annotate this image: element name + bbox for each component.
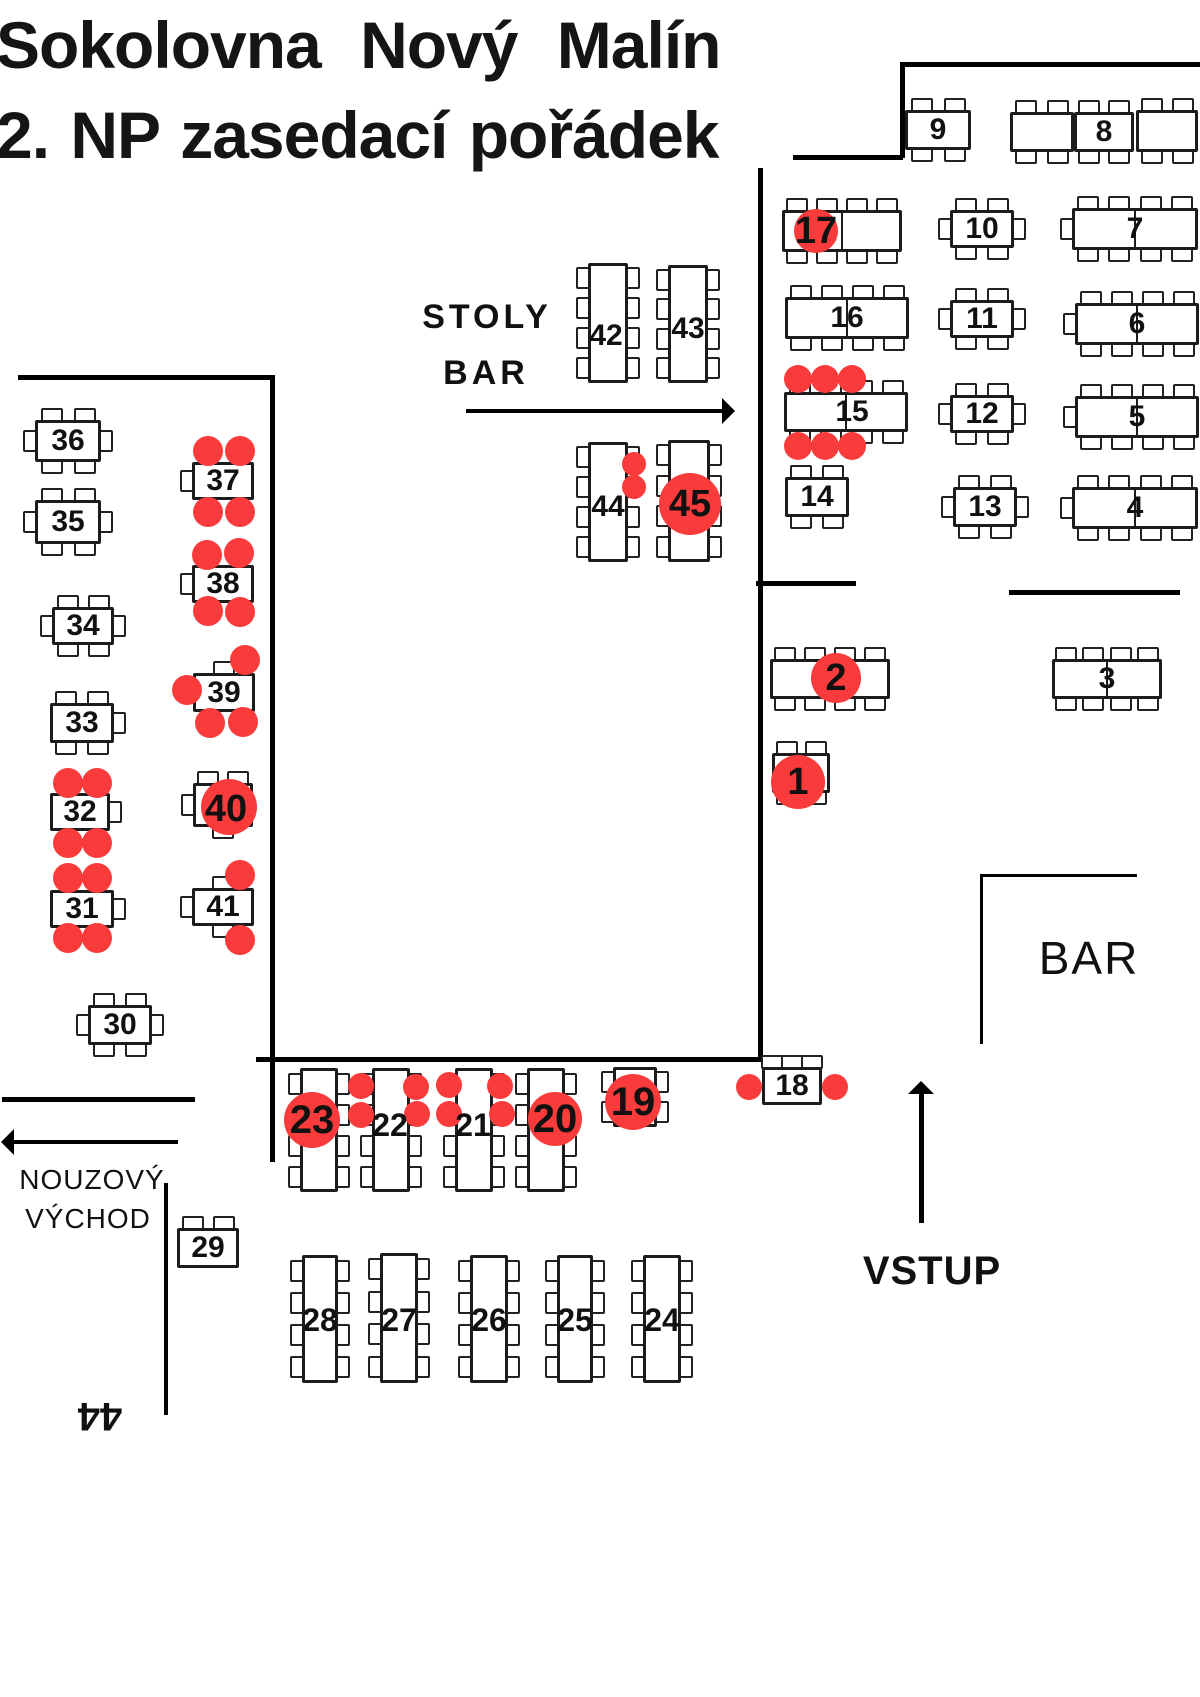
chair bbox=[99, 430, 113, 452]
person-dot bbox=[622, 452, 646, 476]
wall bbox=[164, 1183, 168, 1415]
chair bbox=[1012, 308, 1026, 330]
chair bbox=[786, 250, 808, 264]
chair bbox=[679, 1292, 693, 1314]
person-dot bbox=[230, 645, 260, 675]
table-number: 19 bbox=[611, 1082, 656, 1122]
table-number: 27 bbox=[381, 1304, 417, 1336]
chair bbox=[336, 1356, 350, 1378]
chair bbox=[1142, 343, 1164, 357]
chair bbox=[74, 542, 96, 556]
table-number: 10 bbox=[965, 214, 998, 244]
table-number: 13 bbox=[968, 492, 1001, 522]
table-number: 29 bbox=[191, 1233, 224, 1263]
chair bbox=[1108, 150, 1130, 164]
chair bbox=[336, 1135, 350, 1157]
wall bbox=[793, 155, 903, 160]
person-dot bbox=[225, 497, 255, 527]
wall bbox=[980, 874, 1137, 877]
table-number: 14 bbox=[800, 482, 833, 512]
wall bbox=[2, 1097, 195, 1102]
table-join-divider bbox=[841, 213, 843, 249]
table-number: 44 bbox=[591, 492, 624, 522]
chair bbox=[416, 1356, 430, 1378]
person-dot bbox=[53, 768, 83, 798]
chair bbox=[883, 337, 905, 351]
table-number: 20 bbox=[533, 1099, 578, 1139]
person-dot bbox=[838, 365, 866, 393]
chair bbox=[1012, 403, 1026, 425]
chair bbox=[1137, 697, 1159, 711]
table-number: 43 bbox=[671, 314, 704, 344]
table-number: 3 bbox=[1099, 664, 1116, 694]
emergency-exit-label-line2: VÝCHOD bbox=[25, 1205, 151, 1233]
table-number: 33 bbox=[65, 708, 98, 738]
person-dot bbox=[172, 675, 202, 705]
person-dot bbox=[82, 768, 112, 798]
person-dot bbox=[784, 432, 812, 460]
person-dot bbox=[225, 925, 255, 955]
table-number: 45 bbox=[669, 485, 711, 523]
wall bbox=[270, 375, 275, 1162]
chair bbox=[774, 697, 796, 711]
chair bbox=[408, 1135, 422, 1157]
chair bbox=[1140, 248, 1162, 262]
table bbox=[1136, 110, 1198, 152]
person-dot bbox=[622, 475, 646, 499]
chair bbox=[506, 1260, 520, 1282]
chair bbox=[1108, 248, 1130, 262]
emergency-exit-label-line1: NOUZOVÝ bbox=[19, 1166, 164, 1194]
chair bbox=[416, 1323, 430, 1345]
person-dot bbox=[838, 432, 866, 460]
chair bbox=[506, 1356, 520, 1378]
table-number: 7 bbox=[1127, 214, 1144, 244]
stoly-label: STOLY bbox=[422, 300, 552, 334]
table-number: 40 bbox=[205, 790, 247, 828]
wall bbox=[1009, 590, 1180, 595]
chair bbox=[491, 1135, 505, 1157]
chair bbox=[591, 1260, 605, 1282]
chair bbox=[150, 1014, 164, 1036]
table-number: 12 bbox=[965, 399, 998, 429]
chair bbox=[1140, 527, 1162, 541]
chair bbox=[1077, 248, 1099, 262]
chair bbox=[1173, 343, 1195, 357]
chair bbox=[336, 1292, 350, 1314]
person-dot bbox=[195, 708, 225, 738]
emergency-exit-arrow bbox=[12, 1140, 178, 1144]
chair bbox=[846, 250, 868, 264]
chair bbox=[87, 741, 109, 755]
chair bbox=[822, 515, 844, 529]
chair bbox=[1080, 343, 1102, 357]
chair bbox=[1015, 496, 1029, 518]
chair bbox=[944, 148, 966, 162]
chair bbox=[708, 536, 722, 558]
chair bbox=[706, 328, 720, 350]
table-number: 18 bbox=[775, 1071, 808, 1101]
table-number: 37 bbox=[206, 466, 239, 496]
chair bbox=[955, 431, 977, 445]
table-number: 25 bbox=[557, 1304, 593, 1336]
wall bbox=[18, 375, 270, 380]
table-number: 38 bbox=[206, 569, 239, 599]
chair bbox=[112, 712, 126, 734]
chair bbox=[790, 515, 812, 529]
stoly-bar-label: BAR bbox=[443, 356, 529, 390]
chair bbox=[55, 741, 77, 755]
chair bbox=[626, 506, 640, 528]
chair bbox=[987, 246, 1009, 260]
chair bbox=[626, 357, 640, 379]
chair bbox=[93, 1043, 115, 1057]
chair bbox=[990, 525, 1012, 539]
person-dot bbox=[82, 923, 112, 953]
chair bbox=[852, 337, 874, 351]
table-number: 4 bbox=[1127, 493, 1144, 523]
chair bbox=[336, 1324, 350, 1346]
table-number: 34 bbox=[66, 611, 99, 641]
chair bbox=[790, 337, 812, 351]
chair bbox=[987, 431, 1009, 445]
table bbox=[1010, 112, 1074, 152]
chair bbox=[1172, 150, 1194, 164]
person-dot bbox=[811, 432, 839, 460]
table-number: 23 bbox=[290, 1100, 335, 1140]
chair bbox=[626, 297, 640, 319]
stoly-bar-arrow bbox=[466, 409, 724, 413]
chair bbox=[1078, 150, 1100, 164]
page-title-line2: 2. NP zasedací pořádek bbox=[0, 102, 718, 168]
chair bbox=[41, 460, 63, 474]
table-number: 16 bbox=[830, 303, 863, 333]
table-number: 15 bbox=[835, 397, 868, 427]
table-number: 31 bbox=[65, 894, 98, 924]
person-dot bbox=[192, 540, 222, 570]
emergency-exit-arrow-head bbox=[1, 1129, 14, 1155]
chair bbox=[408, 1166, 422, 1188]
floor-plan-canvas: Sokolovna Nový Malín 2. NP zasedací pořá… bbox=[0, 0, 1200, 1697]
table-number: 21 bbox=[455, 1109, 491, 1141]
person-dot bbox=[53, 923, 83, 953]
person-dot bbox=[403, 1074, 429, 1100]
chair bbox=[563, 1166, 577, 1188]
chair bbox=[416, 1291, 430, 1313]
chair bbox=[1171, 527, 1193, 541]
table-number: 1 bbox=[787, 763, 808, 801]
stoly-bar-arrow-head bbox=[722, 398, 735, 424]
table-number: 22 bbox=[372, 1109, 408, 1141]
rotated-44-label: 44 bbox=[78, 1396, 123, 1436]
person-dot bbox=[82, 863, 112, 893]
chair bbox=[1055, 697, 1077, 711]
chair bbox=[911, 148, 933, 162]
table-number: 24 bbox=[644, 1304, 680, 1336]
chair bbox=[416, 1258, 430, 1280]
chair bbox=[1077, 527, 1099, 541]
table-number: 39 bbox=[207, 678, 240, 708]
person-dot bbox=[811, 365, 839, 393]
chair bbox=[1173, 436, 1195, 450]
chair bbox=[708, 444, 722, 466]
table-number: 42 bbox=[589, 321, 622, 351]
chair bbox=[882, 430, 904, 444]
wall bbox=[980, 874, 983, 1044]
chair bbox=[1108, 527, 1130, 541]
table-number: 41 bbox=[206, 892, 239, 922]
table-number: 11 bbox=[966, 304, 998, 334]
chair bbox=[1171, 248, 1193, 262]
person-dot bbox=[784, 365, 812, 393]
person-dot bbox=[82, 828, 112, 858]
chair bbox=[336, 1166, 350, 1188]
person-dot bbox=[436, 1072, 462, 1098]
person-dot bbox=[193, 497, 223, 527]
chair bbox=[99, 511, 113, 533]
chair bbox=[506, 1324, 520, 1346]
wall bbox=[756, 581, 856, 586]
chair bbox=[706, 357, 720, 379]
chair bbox=[679, 1260, 693, 1282]
chair bbox=[591, 1356, 605, 1378]
chair bbox=[626, 536, 640, 558]
chair bbox=[1015, 150, 1037, 164]
table-number: 26 bbox=[471, 1304, 507, 1336]
chair bbox=[112, 898, 126, 920]
chair bbox=[876, 250, 898, 264]
chair bbox=[958, 525, 980, 539]
vstup-arrow-head bbox=[908, 1081, 934, 1094]
person-dot bbox=[487, 1073, 513, 1099]
chair bbox=[1111, 343, 1133, 357]
wall bbox=[900, 62, 1200, 67]
table-number: 6 bbox=[1129, 309, 1146, 339]
person-dot bbox=[348, 1073, 374, 1099]
table-number: 9 bbox=[930, 115, 947, 145]
bar-label: BAR bbox=[1039, 935, 1140, 981]
chair bbox=[955, 336, 977, 350]
person-dot bbox=[404, 1101, 430, 1127]
chair bbox=[626, 327, 640, 349]
table-number: 2 bbox=[825, 659, 846, 697]
chair bbox=[57, 643, 79, 657]
chair bbox=[563, 1073, 577, 1095]
chair bbox=[626, 267, 640, 289]
table-number: 28 bbox=[302, 1304, 338, 1336]
vstup-arrow bbox=[919, 1092, 924, 1223]
person-dot bbox=[225, 436, 255, 466]
vstup-label: VSTUP bbox=[863, 1251, 1001, 1291]
chair bbox=[491, 1166, 505, 1188]
chair bbox=[112, 615, 126, 637]
table-number: 36 bbox=[51, 426, 84, 456]
page-title-line1: Sokolovna Nový Malín bbox=[0, 12, 720, 78]
chair bbox=[864, 697, 886, 711]
person-dot bbox=[348, 1102, 374, 1128]
person-dot bbox=[53, 863, 83, 893]
chair bbox=[1111, 436, 1133, 450]
chair bbox=[1110, 697, 1132, 711]
table-number: 35 bbox=[51, 507, 84, 537]
chair bbox=[679, 1356, 693, 1378]
chair bbox=[591, 1292, 605, 1314]
chair bbox=[506, 1292, 520, 1314]
chair bbox=[706, 269, 720, 291]
chair bbox=[1082, 697, 1104, 711]
chair bbox=[591, 1324, 605, 1346]
chair bbox=[821, 337, 843, 351]
person-dot bbox=[736, 1074, 762, 1100]
person-dot bbox=[53, 828, 83, 858]
person-dot bbox=[489, 1101, 515, 1127]
chair bbox=[706, 298, 720, 320]
chair bbox=[679, 1324, 693, 1346]
chair bbox=[955, 246, 977, 260]
person-dot bbox=[228, 707, 258, 737]
table-number: 8 bbox=[1096, 117, 1113, 147]
chair bbox=[987, 336, 1009, 350]
wall bbox=[758, 168, 763, 1060]
person-dot bbox=[225, 860, 255, 890]
chair bbox=[1047, 150, 1069, 164]
chair bbox=[108, 801, 122, 823]
chair bbox=[88, 643, 110, 657]
chair bbox=[74, 460, 96, 474]
chair bbox=[336, 1260, 350, 1282]
person-dot bbox=[193, 436, 223, 466]
chair bbox=[1080, 436, 1102, 450]
chair bbox=[1141, 150, 1163, 164]
person-dot bbox=[193, 596, 223, 626]
chair bbox=[41, 542, 63, 556]
table-number: 30 bbox=[103, 1010, 136, 1040]
chair bbox=[1012, 218, 1026, 240]
chair bbox=[125, 1043, 147, 1057]
chair bbox=[1142, 436, 1164, 450]
person-dot bbox=[822, 1074, 848, 1100]
person-dot bbox=[225, 597, 255, 627]
table-number: 32 bbox=[63, 797, 96, 827]
table-number: 17 bbox=[795, 212, 837, 250]
table-number: 5 bbox=[1129, 402, 1146, 432]
person-dot bbox=[224, 538, 254, 568]
wall bbox=[256, 1057, 812, 1062]
